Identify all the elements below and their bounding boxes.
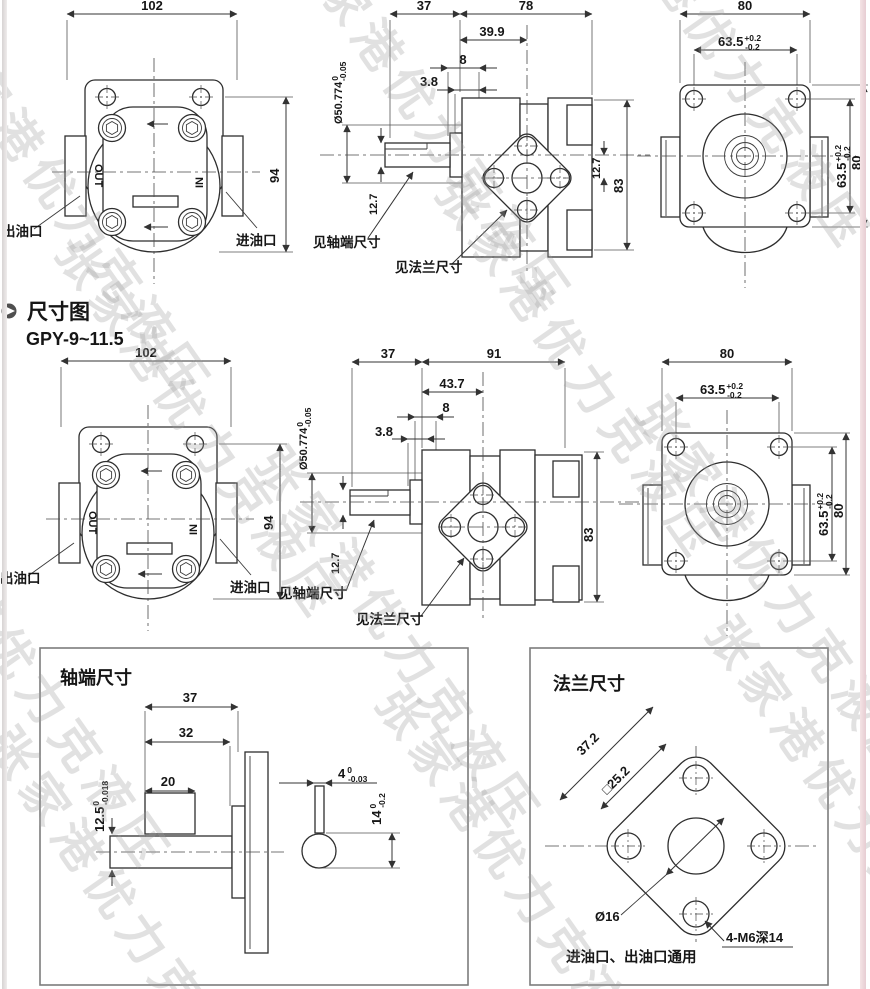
dim-8: 8	[442, 400, 449, 415]
flange-box-title: 法兰尺寸	[553, 673, 625, 695]
see-shaft-note: 见轴端尺寸	[313, 234, 381, 251]
technical-drawing: 102 94 OUT IN 出油口 进油口	[0, 0, 870, 989]
dim-25-2: □25.2	[599, 763, 633, 797]
dim-80-top: 80	[738, 0, 752, 13]
dim-63-5-top: 63.5+0.2-0.2	[718, 33, 761, 52]
row2-front-view: 102 94 OUT IN 出油口 进油口	[0, 345, 287, 631]
outlet-label: 出油口	[2, 223, 43, 240]
dim-key-width: 40-0.03	[338, 765, 368, 784]
see-flange-note: 见法兰尺寸	[356, 611, 424, 628]
dim-20: 20	[161, 774, 175, 789]
port-in-label: IN	[194, 177, 206, 188]
row2-side-view: 37 91 43.7 8 3.8 Ø50.7740-0.05 12.7 83 见…	[279, 346, 640, 628]
row2-rear-view: 80 63.5+0.2-0.2 63.5+0.2-0.2 80	[619, 346, 850, 636]
shaft-end-box: 轴端尺寸 37 32	[40, 648, 468, 985]
flange-box: 法兰尺寸 37.2 □25.2 Ø16 4-M6深14 进油口、出油口通用	[530, 648, 828, 985]
dim-37-2: 37.2	[574, 730, 603, 759]
dim-shaft-dia: Ø50.7740-0.05	[295, 407, 313, 470]
port-out-label: OUT	[92, 164, 104, 188]
dim-3-8: 3.8	[375, 424, 393, 439]
dim-80-right: 80	[849, 156, 864, 170]
dim-12-5: 12.50-0.018	[91, 781, 110, 832]
row1-front-view: 102 94 OUT IN 出油口 进油口	[2, 0, 293, 284]
dim-32: 32	[179, 725, 193, 740]
model-code: GPY-9~11.5	[26, 329, 124, 349]
dim-94: 94	[267, 168, 282, 183]
thread-spec: 4-M6深14	[726, 930, 784, 945]
dim-102: 102	[135, 345, 157, 360]
dim-8: 8	[459, 52, 466, 67]
dim-shaft-dia: Ø50.7740-0.05	[330, 61, 348, 124]
ports-common-note: 进油口、出油口通用	[566, 948, 697, 966]
dim-3-8: 3.8	[420, 74, 438, 89]
dim-12-7-left: 12.7	[368, 194, 380, 215]
dim-78: 78	[519, 0, 533, 13]
inlet-label: 进油口	[230, 579, 271, 596]
dim-91: 91	[487, 346, 501, 361]
dim-37: 37	[381, 346, 395, 361]
inlet-label: 进油口	[236, 232, 277, 249]
dim-16: Ø16	[595, 909, 620, 924]
dim-12-7-right: 12.7	[591, 158, 603, 179]
dim-83: 83	[581, 528, 596, 542]
outlet-label: 出油口	[0, 570, 41, 587]
see-shaft-note: 见轴端尺寸	[279, 585, 347, 602]
shaft-box-title: 轴端尺寸	[60, 667, 132, 689]
dim-94: 94	[261, 515, 276, 530]
drawing-page: 张家港优力克液压 张家港优力克液压 张家港优力克液压 张家港优力克液压 张家港优…	[0, 0, 870, 989]
dim-80-top: 80	[720, 346, 734, 361]
row1-rear-view: 80 63.5+0.2-0.2 63.5+0.2-0.2 80	[637, 0, 868, 288]
dim-63-5-top: 63.5+0.2-0.2	[700, 381, 743, 400]
see-flange-note: 见法兰尺寸	[395, 259, 463, 276]
port-out-label: OUT	[86, 511, 98, 535]
dim-80-right: 80	[831, 504, 846, 518]
dim-43-7: 43.7	[439, 376, 464, 391]
dim-102: 102	[141, 0, 163, 13]
dim-37: 37	[417, 0, 431, 13]
dim-12-7: 12.7	[330, 553, 342, 574]
row1-side-view: 37 78 39.9 8 3.8 Ø50.7740-0.05 12.7 12.7…	[313, 0, 650, 276]
section-header: 尺寸图 GPY-9~11.5	[2, 300, 124, 349]
dim-39-9: 39.9	[479, 24, 504, 39]
section-title: 尺寸图	[27, 300, 90, 324]
port-in-label: IN	[188, 524, 200, 535]
dim-37: 37	[183, 690, 197, 705]
dim-83: 83	[611, 179, 626, 193]
dim-key-height: 140-0.2	[368, 793, 387, 825]
